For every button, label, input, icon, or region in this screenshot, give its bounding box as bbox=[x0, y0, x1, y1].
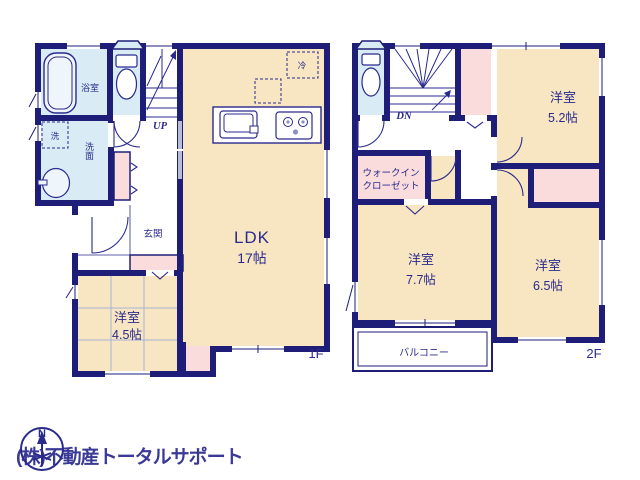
floor1-plan: 浴室 洗 洗面 冷 玄関 LDK 17帖 洋室 4.5帖 UP 1F bbox=[29, 41, 330, 377]
floor2-plan: 洋室 5.2帖 洋室 7.7帖 洋室 6.5帖 ウォークイン クローゼット バル… bbox=[346, 41, 605, 371]
floor-plan-page: 浴室 洗 洗面 冷 玄関 LDK 17帖 洋室 4.5帖 UP 1F bbox=[0, 0, 640, 480]
room-western-52 bbox=[497, 49, 599, 163]
floor-plan-drawing: 浴室 洗 洗面 冷 玄関 LDK 17帖 洋室 4.5帖 UP 1F bbox=[0, 0, 640, 480]
western-77-size-label: 7.7帖 bbox=[406, 272, 436, 287]
wic-label-line2: クローゼット bbox=[362, 180, 419, 192]
western-52-label: 洋室 bbox=[550, 90, 576, 105]
washroom-label: 洗面 bbox=[84, 141, 94, 161]
watermark-text: (株)不動産トータルサポート bbox=[16, 445, 243, 468]
western-45-size-label: 4.5帖 bbox=[112, 327, 142, 342]
laundry-label: 洗 bbox=[51, 131, 60, 141]
storage-1f bbox=[183, 346, 210, 371]
closet-2f-hall bbox=[461, 49, 491, 115]
hall-closet bbox=[130, 255, 183, 271]
wic-label-line1: ウォークイン bbox=[362, 168, 419, 179]
balcony-label: バルコニー bbox=[399, 347, 449, 359]
room-ldk bbox=[183, 49, 324, 346]
stove-icon bbox=[276, 112, 312, 139]
closet-65 bbox=[534, 169, 599, 202]
shoe-closet bbox=[114, 152, 130, 200]
stairs-up-label: UP bbox=[153, 121, 168, 132]
floor2-label: 2F bbox=[586, 346, 601, 361]
western-45-label: 洋室 bbox=[114, 310, 140, 325]
bay-window-2f bbox=[356, 41, 386, 49]
toilet-icon-1f bbox=[116, 55, 137, 99]
western-65-size-label: 6.5帖 bbox=[533, 278, 563, 293]
western-77-label: 洋室 bbox=[408, 252, 434, 267]
compass-north-label: N bbox=[38, 428, 46, 440]
ldk-size-label: 17帖 bbox=[237, 250, 267, 266]
bay-window-1f bbox=[112, 41, 144, 49]
western-65-label: 洋室 bbox=[535, 258, 561, 273]
western-52-size-label: 5.2帖 bbox=[548, 110, 578, 125]
bathtub-icon bbox=[44, 53, 76, 113]
floor1-label: 1F bbox=[308, 346, 323, 361]
sink-icon bbox=[220, 111, 257, 138]
toilet-icon-2f bbox=[362, 54, 380, 96]
stairs-dn-label: DN bbox=[395, 111, 412, 122]
kitchen-counter bbox=[213, 107, 321, 143]
entrance-label: 玄関 bbox=[143, 228, 162, 240]
ldk-label: LDK bbox=[234, 228, 270, 247]
fridge-label: 冷 bbox=[298, 61, 307, 71]
bath-label: 浴室 bbox=[81, 82, 99, 93]
